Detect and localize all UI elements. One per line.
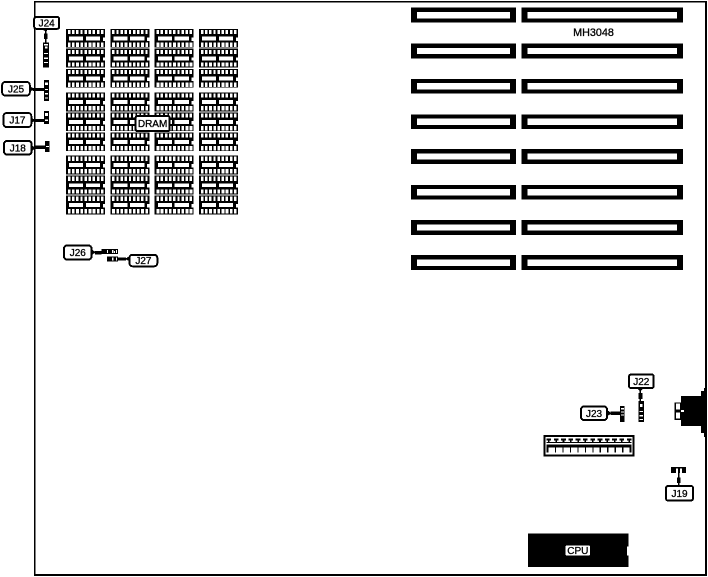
svg-text:J22: J22 <box>633 377 650 388</box>
svg-text:MH3048: MH3048 <box>573 27 614 39</box>
svg-text:J27: J27 <box>135 256 152 267</box>
svg-text:J19: J19 <box>671 489 688 500</box>
svg-text:J23: J23 <box>586 409 603 420</box>
svg-text:J18: J18 <box>10 143 27 154</box>
svg-text:J25: J25 <box>8 84 25 95</box>
svg-text:J24: J24 <box>39 19 56 30</box>
svg-text:DRAM: DRAM <box>138 119 167 130</box>
svg-text:J17: J17 <box>9 116 26 127</box>
svg-text:CPU: CPU <box>567 546 588 557</box>
svg-text:J26: J26 <box>70 248 87 259</box>
